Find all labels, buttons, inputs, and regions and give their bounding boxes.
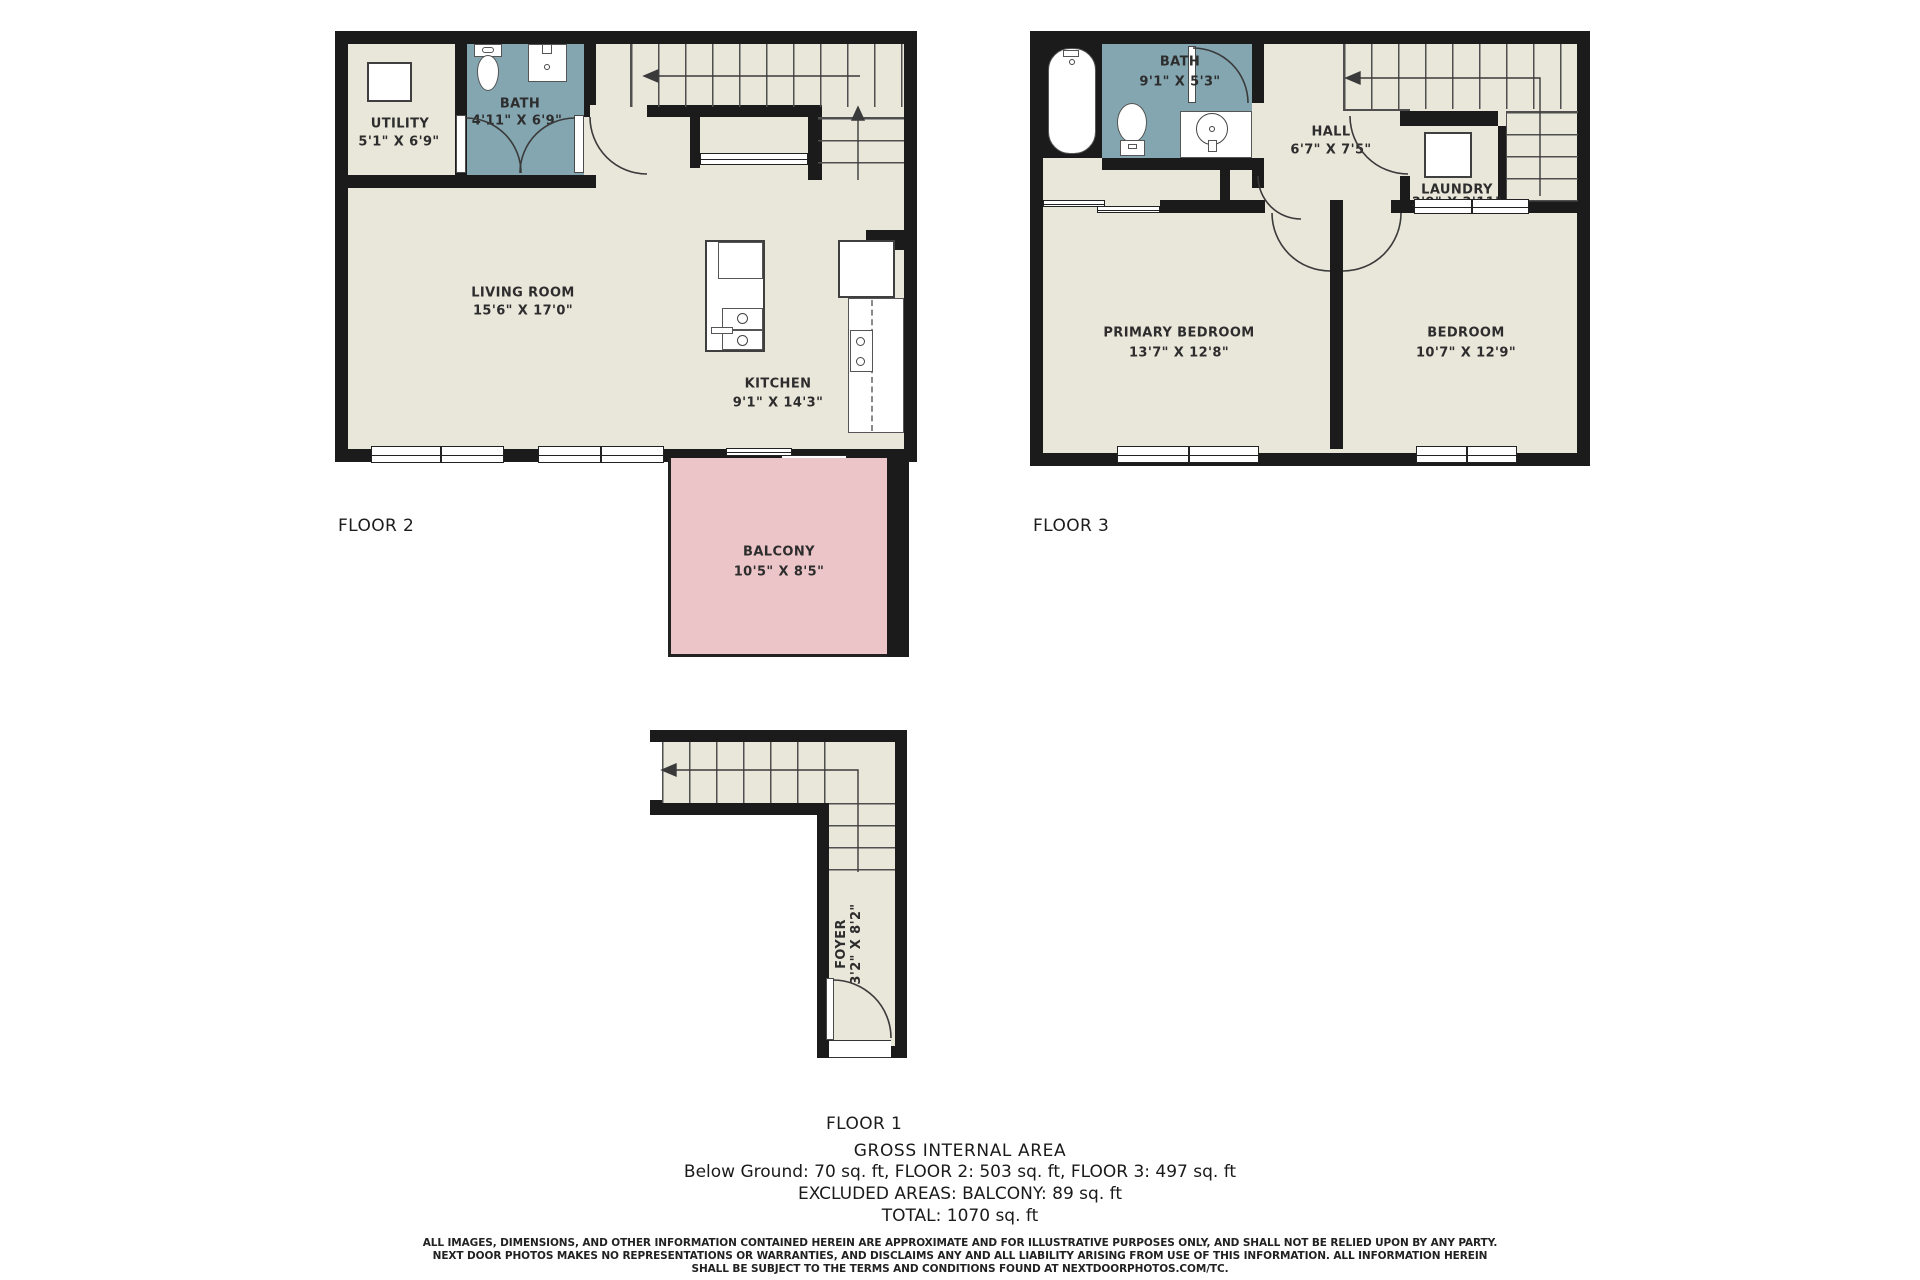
utility-room-label: UTILITY: [371, 117, 429, 132]
entry-threshold: [829, 1040, 891, 1058]
window-divider: [1188, 447, 1190, 462]
floor3-wall-bedroom-divider: [1330, 200, 1343, 449]
floor2-window-living-right: [538, 446, 664, 463]
balcony-label: BALCONY: [743, 545, 815, 560]
bath3-room-dims: 9'1" X 5'3": [1139, 75, 1220, 90]
sink-faucet-icon: [542, 44, 552, 54]
living-room-dims: 15'6" X 17'0": [473, 304, 573, 319]
cooktop-burner-icon: [737, 313, 748, 324]
island-sink-icon: [718, 242, 763, 279]
floor1-wall-foyer-right: [895, 742, 907, 1058]
bath-room-label: BATH: [500, 97, 540, 112]
floor3-wall-bedroom-top-mid: [1391, 200, 1414, 213]
floor2-interior-window: [700, 153, 808, 165]
toilet-button-icon: [1128, 144, 1137, 149]
bath-door-leaf-right: [574, 115, 584, 173]
living-room-label: LIVING ROOM: [471, 286, 575, 301]
closet-sliding-door-panel: [1097, 206, 1160, 213]
floor3-wall-laundry-top: [1410, 111, 1498, 126]
floor1-wall-band-bottom: [650, 803, 817, 815]
disclaimer-line: NEXT DOOR PHOTOS MAKES NO REPRESENTATION…: [0, 1250, 1920, 1263]
toilet-button-icon: [482, 47, 494, 53]
stove-burner-icon: [856, 337, 865, 346]
disclaimer-line: SHALL BE SUBJECT TO THE TERMS AND CONDIT…: [0, 1263, 1920, 1276]
floor1-stairs-upper-flight: [662, 742, 838, 803]
floor2-wall-bath-right: [584, 44, 596, 105]
entry-door-leaf: [826, 978, 834, 1040]
foyer-label-group: FOYER 3'2" X 8'2": [834, 903, 864, 984]
laundry-doorway-gap: [1400, 126, 1410, 176]
tub-faucet-icon: [1063, 50, 1079, 57]
cooktop-handle-icon: [711, 327, 733, 334]
floor3-wall-hall-stub: [1252, 158, 1264, 188]
hall-room-label: HALL: [1311, 125, 1350, 140]
bath-door-leaf-left: [456, 115, 466, 173]
kitchen-room-label: KITCHEN: [745, 377, 812, 392]
foyer-room-label: FOYER: [834, 903, 849, 984]
vanity-drain-icon: [1209, 126, 1215, 132]
floor3-stairs-edge-line: [1343, 109, 1410, 111]
balcony-right-wall: [887, 458, 909, 657]
floor2-wall-stub-left: [690, 117, 700, 168]
window-divider: [440, 447, 442, 462]
tub-drain-icon: [1069, 59, 1075, 65]
bath3-room-label: BATH: [1160, 55, 1200, 70]
floor2-tag: FLOOR 2: [338, 516, 414, 536]
floor3-wall-laundry-right: [1498, 126, 1506, 203]
floor2-wall-stair-left: [584, 105, 590, 117]
summary-line-floors: Below Ground: 70 sq. ft, FLOOR 2: 503 sq…: [0, 1161, 1920, 1183]
floor3-window-bedroom: [1416, 446, 1517, 463]
window-divider: [1466, 447, 1468, 462]
hall-room-dims: 6'7" X 7'5": [1290, 143, 1371, 158]
floor3-bedroom-top-window: [1414, 199, 1529, 214]
floor3-tag: FLOOR 3: [1033, 516, 1109, 536]
stove-burner-icon: [856, 357, 865, 366]
floor2-window-living-left: [371, 446, 504, 463]
fridge-icon: [838, 240, 895, 298]
toilet-bowl-icon: [1117, 103, 1147, 143]
disclaimer-line: ALL IMAGES, DIMENSIONS, AND OTHER INFORM…: [0, 1237, 1920, 1250]
cooktop-burner-icon: [737, 335, 748, 346]
primary-bedroom-dims: 13'7" X 12'8": [1129, 346, 1229, 361]
balcony-dims: 10'5" X 8'5": [734, 565, 825, 580]
foyer-room-dims: 3'2" X 8'2": [849, 903, 864, 984]
laundry-washer-icon: [1424, 132, 1472, 178]
bath-room-dims: 4'11" X 6'9": [472, 114, 563, 129]
primary-bedroom-label: PRIMARY BEDROOM: [1103, 326, 1254, 341]
floor1-tag: FLOOR 1: [826, 1114, 902, 1134]
floor2-stairs-right-flight: [818, 117, 904, 181]
vanity-faucet-icon: [1208, 140, 1217, 152]
utility-room-dims: 5'1" X 6'9": [358, 135, 439, 150]
floor3-wall-bedroom-top-left: [1160, 200, 1265, 213]
floor2-wall-utility-bottom: [348, 175, 596, 188]
floor3-stairs-right-flight: [1506, 111, 1578, 204]
area-summary: GROSS INTERNAL AREA Below Ground: 70 sq.…: [0, 1142, 1920, 1227]
floorplan-page: UTILITY 5'1" X 6'9" BATH 4'11" X 6'9" LI…: [0, 0, 1920, 1280]
floor2-stairs-upper-flight: [630, 44, 905, 107]
floor3-window-primary: [1117, 446, 1259, 463]
floor1-wall-top: [650, 730, 907, 742]
floor3-stairs-upper-flight: [1343, 44, 1578, 109]
floor3-wall-bath-right: [1252, 44, 1264, 103]
bedroom-label: BEDROOM: [1427, 326, 1504, 341]
summary-title: GROSS INTERNAL AREA: [0, 1142, 1920, 1161]
summary-line-excluded: EXCLUDED AREAS: BALCONY: 89 sq. ft: [0, 1183, 1920, 1205]
plan-annotations: [0, 0, 1920, 1280]
disclaimer-text: ALL IMAGES, DIMENSIONS, AND OTHER INFORM…: [0, 1237, 1920, 1276]
floor1-stairs-lower-flight: [829, 803, 895, 875]
kitchen-room-dims: 9'1" X 14'3": [733, 396, 824, 411]
sink-drain-icon: [544, 64, 550, 70]
window-divider: [1471, 200, 1473, 213]
closet-sliding-door-panel: [1043, 200, 1105, 207]
window-divider: [600, 447, 602, 462]
bedroom-dims: 10'7" X 12'9": [1416, 346, 1516, 361]
floor3-wall-closet-stub: [1220, 158, 1230, 200]
floor3-wall-bath-bottom: [1102, 158, 1264, 170]
summary-line-total: TOTAL: 1070 sq. ft: [0, 1205, 1920, 1227]
washer-icon: [367, 62, 412, 102]
